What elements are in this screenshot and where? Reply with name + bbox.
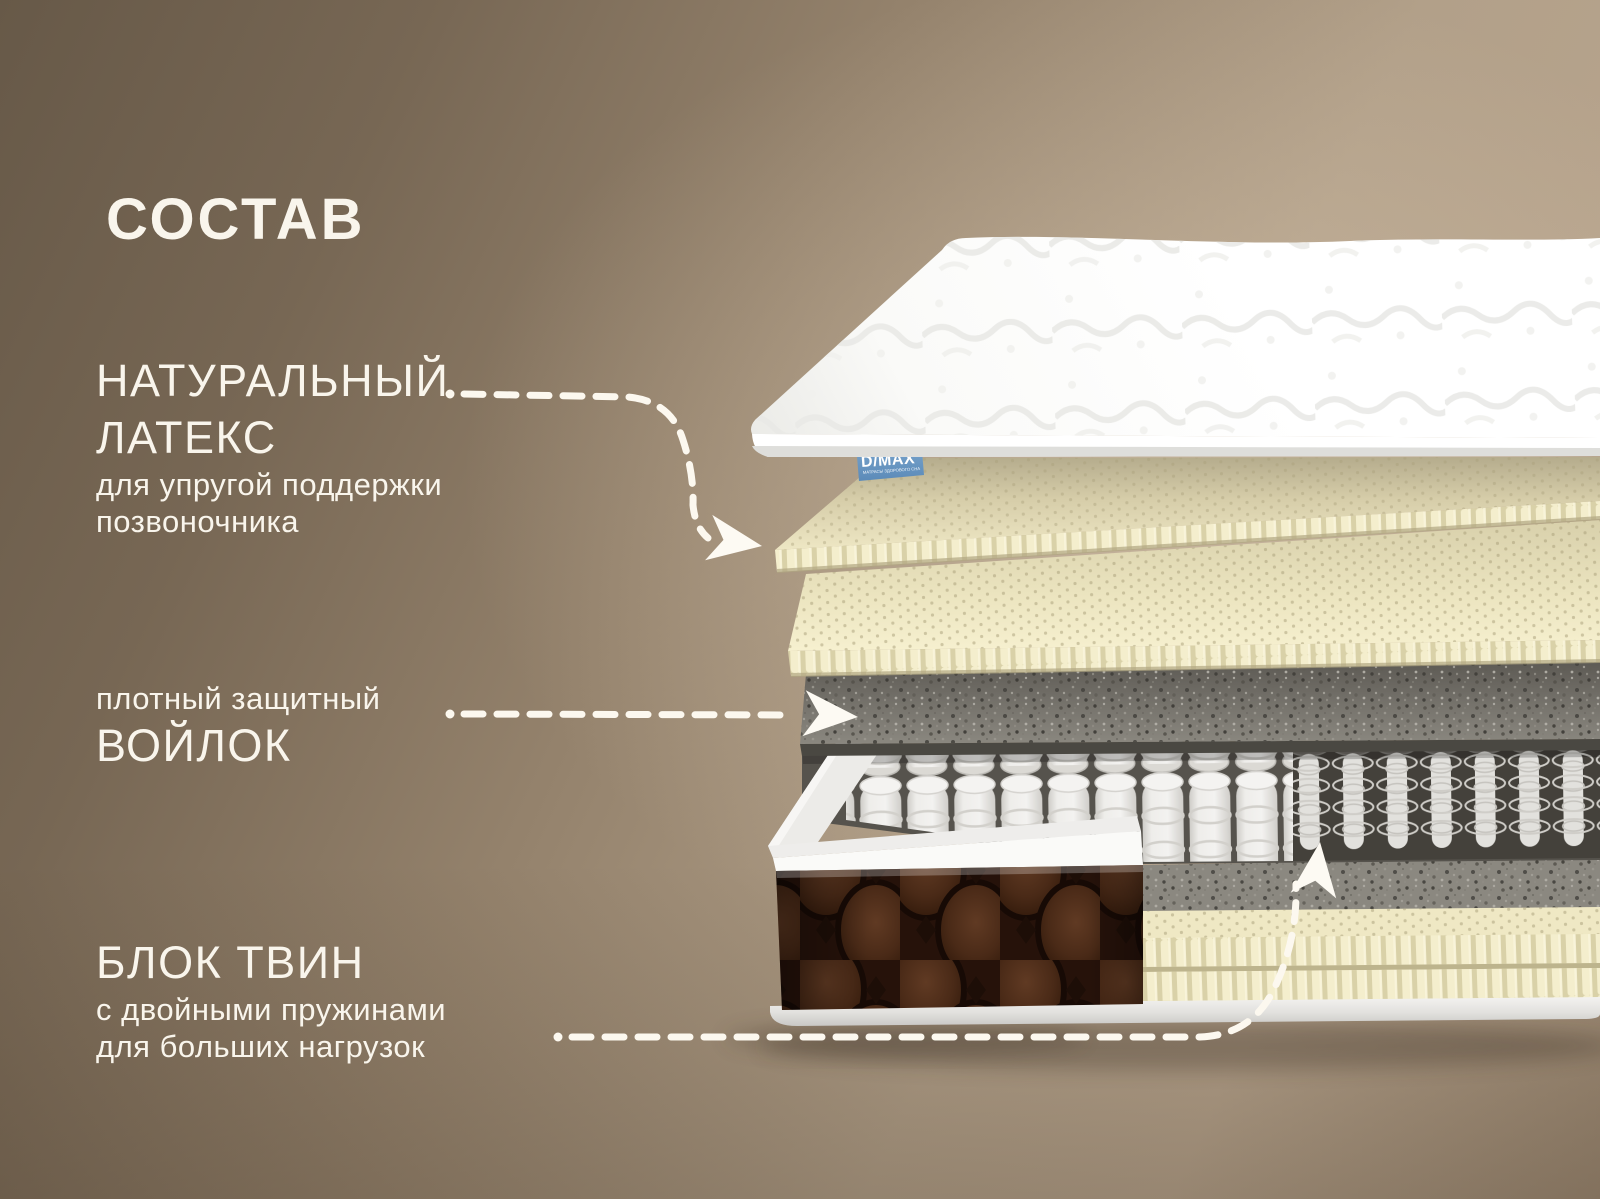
label-twin-big: БЛОК ТВИН [96, 934, 446, 991]
bottom-latex-layer [1143, 907, 1600, 1001]
ground-shadow [725, 1021, 1600, 1070]
label-latex-line2: ЛАТЕКС [96, 409, 449, 466]
label-twin-desc1: с двойными пружинами [96, 991, 446, 1028]
connector-twin-start-dot [557, 1036, 559, 1038]
label-latex-line1: НАТУРАЛЬНЫЙ [96, 352, 449, 409]
connector-felt-line [464, 714, 792, 715]
label-twin-desc2: для больших нагрузок [96, 1028, 446, 1065]
label-twin: БЛОК ТВИН с двойными пружинами для больш… [96, 934, 446, 1065]
label-latex-desc1: для упругой поддержки [96, 466, 449, 503]
connector-latex-line [464, 394, 708, 538]
brown-knit-side-panel [776, 865, 1143, 1010]
label-felt-big: ВОЙЛОК [96, 717, 381, 774]
arrow-icon [705, 515, 766, 569]
connector-felt-start-dot [449, 713, 451, 715]
label-felt: плотный защитный ВОЙЛОК [96, 680, 381, 774]
label-latex: НАТУРАЛЬНЫЙ ЛАТЕКС для упругой поддержки… [96, 352, 449, 540]
page-title: СОСТАВ [106, 186, 366, 253]
bottom-felt-layer [1143, 857, 1600, 911]
label-felt-small: плотный защитный [96, 680, 381, 717]
quilted-top-cover [751, 237, 1600, 457]
label-latex-desc2: позвоночника [96, 503, 449, 540]
infographic-canvas: D/MAX МАТРАСЫ ЗДОРОВОГО СНА СОСТАВ НАТУ [0, 0, 1600, 1199]
